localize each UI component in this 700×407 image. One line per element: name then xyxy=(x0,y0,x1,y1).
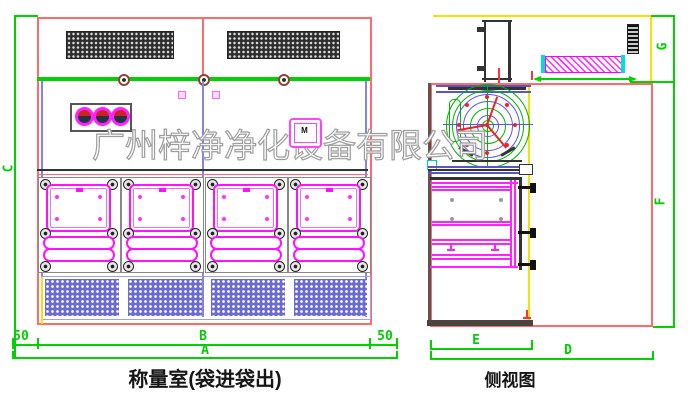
filter-mark xyxy=(447,249,455,251)
plinth-yellow-line xyxy=(41,277,43,324)
window-dot xyxy=(265,195,269,199)
dim-label-50-left: 50 xyxy=(8,330,34,343)
fan-bolt xyxy=(513,123,517,127)
damper xyxy=(627,24,639,54)
bolt-icon xyxy=(123,261,134,272)
filter-line xyxy=(432,224,512,226)
dim-tick xyxy=(651,15,674,17)
clamp-handle xyxy=(530,183,536,193)
exhaust-duct-wall xyxy=(508,20,511,82)
arrow-left-icon xyxy=(533,76,541,82)
dim-tick xyxy=(14,15,38,17)
fan-bolt xyxy=(505,143,509,147)
dim-tick xyxy=(652,351,654,360)
filter-box-left-wall xyxy=(428,177,430,270)
dim-label-d: D xyxy=(560,344,576,357)
screw-icon xyxy=(198,74,210,86)
indicator-square xyxy=(178,91,186,99)
clamp-handle xyxy=(530,260,536,270)
filter-line xyxy=(432,186,512,188)
dim-label-f: F xyxy=(655,194,668,210)
red-mark xyxy=(523,317,531,319)
shelf-line-dark xyxy=(428,169,532,171)
shelf-line xyxy=(428,166,532,168)
window-latch-icon xyxy=(326,188,333,192)
bolt-icon xyxy=(290,261,301,272)
control-button-icon xyxy=(111,107,130,126)
filter-line xyxy=(432,258,512,260)
top-grille-left xyxy=(66,31,174,59)
front-view-caption: 称量室(袋进袋出) xyxy=(60,363,350,392)
window-dot xyxy=(348,217,352,221)
top-center-divider xyxy=(202,17,204,78)
filter-box-right-wall xyxy=(519,177,522,270)
indicator-square xyxy=(212,91,220,99)
dim-tick xyxy=(37,338,39,349)
dim-tick xyxy=(396,351,398,359)
duct-red-line xyxy=(498,68,500,83)
viewing-window xyxy=(129,184,194,232)
worktop-red-line xyxy=(37,174,368,175)
fan-bolt xyxy=(465,103,469,107)
window-dot xyxy=(222,195,226,199)
fan-bolt xyxy=(485,95,489,99)
top-grille-right xyxy=(227,31,340,59)
bolt-icon xyxy=(190,261,201,272)
window-dot xyxy=(55,195,59,199)
exhaust-duct-cap xyxy=(482,78,512,80)
filter-line xyxy=(432,243,512,245)
filter-line xyxy=(430,182,518,184)
dim-line-gf xyxy=(673,15,675,328)
window-latch-icon xyxy=(243,188,250,192)
side-view-caption: 侧视图 xyxy=(440,366,580,391)
bolt-icon xyxy=(357,261,368,272)
filter-bolt xyxy=(499,198,503,202)
viewing-window xyxy=(213,184,278,232)
worktop-line xyxy=(37,169,368,171)
duct-flange xyxy=(477,66,485,71)
control-button-icon xyxy=(93,107,112,126)
return-air-grille xyxy=(45,279,119,316)
filter-line xyxy=(432,254,512,256)
filter-bolt xyxy=(450,198,454,202)
return-air-grille xyxy=(128,279,202,316)
side-top-line xyxy=(433,15,652,17)
window-dot xyxy=(181,217,185,221)
dim-label-e: E xyxy=(468,334,484,347)
control-button-icon xyxy=(75,107,94,126)
m-display-label: M xyxy=(291,126,318,135)
filter-line xyxy=(430,266,518,268)
bag-in-bag-out-door xyxy=(288,177,371,273)
return-air-grille-frame xyxy=(41,276,371,320)
duct-dim-line xyxy=(535,78,635,80)
viewing-window xyxy=(296,184,361,232)
screw-icon xyxy=(118,74,130,86)
return-air-grille xyxy=(294,279,367,316)
bolt-icon xyxy=(274,261,285,272)
window-dot xyxy=(305,195,309,199)
cad-drawing: C M xyxy=(0,0,700,407)
window-latch-icon xyxy=(159,188,166,192)
dim-line-d xyxy=(430,358,654,360)
fan-bolt xyxy=(505,103,509,107)
filter-line xyxy=(432,239,512,241)
window-dot xyxy=(98,217,102,221)
dim-tick xyxy=(653,326,674,328)
side-plinth xyxy=(427,320,533,326)
dim-label-c: C xyxy=(3,161,16,177)
filter-box-top xyxy=(430,177,520,180)
arrow-right-icon xyxy=(629,76,637,82)
window-dot xyxy=(138,217,142,221)
bag-port-bar xyxy=(210,248,282,262)
dim-label-50-right: 50 xyxy=(372,330,398,343)
dim-tick xyxy=(12,351,14,359)
shelf-handle xyxy=(519,164,533,175)
clamp-handle xyxy=(530,228,536,238)
side-top-right-line xyxy=(650,15,652,83)
bolt-icon xyxy=(107,261,118,272)
filter-door-edge xyxy=(514,180,516,268)
duct-flange xyxy=(477,27,485,32)
bolt-icon xyxy=(207,261,218,272)
dim-tick xyxy=(430,351,432,360)
window-latch-icon xyxy=(76,188,83,192)
dim-tick-red xyxy=(531,71,533,80)
window-dot xyxy=(265,217,269,221)
window-dot xyxy=(348,195,352,199)
dim-line-c xyxy=(14,15,16,358)
filter-bolt xyxy=(499,217,503,221)
bolt-icon xyxy=(40,261,51,272)
window-dot xyxy=(55,217,59,221)
viewing-window xyxy=(46,184,111,232)
bag-in-bag-out-door xyxy=(121,177,204,273)
display-box: M xyxy=(289,118,322,148)
window-dot xyxy=(98,195,102,199)
dim-label-a: A xyxy=(197,344,213,357)
window-dot xyxy=(305,217,309,221)
bag-port-bar xyxy=(126,248,198,262)
bag-in-bag-out-door xyxy=(38,177,121,273)
shelf-line xyxy=(428,172,532,174)
bag-in-bag-out-door xyxy=(205,177,288,273)
dim-label-g: G xyxy=(657,39,670,55)
hepa-duct-cap xyxy=(541,55,545,73)
return-air-grille xyxy=(211,279,285,316)
door-panels xyxy=(38,177,370,272)
window-dot xyxy=(181,195,185,199)
screw-icon xyxy=(278,74,290,86)
filter-line xyxy=(432,221,512,223)
dim-line-e xyxy=(430,348,533,350)
dim-label-b: B xyxy=(195,330,211,343)
window-dot xyxy=(222,217,226,221)
exhaust-duct-cap xyxy=(482,20,512,22)
hepa-duct-cap xyxy=(621,55,625,73)
dim-tick xyxy=(369,338,371,349)
filter-mark xyxy=(491,249,499,251)
filter-line xyxy=(432,189,512,191)
filter-bolt xyxy=(450,217,454,221)
hepa-duct xyxy=(545,56,623,73)
window-dot xyxy=(138,195,142,199)
bag-port-bar xyxy=(293,248,365,262)
bag-port-bar xyxy=(43,248,115,262)
